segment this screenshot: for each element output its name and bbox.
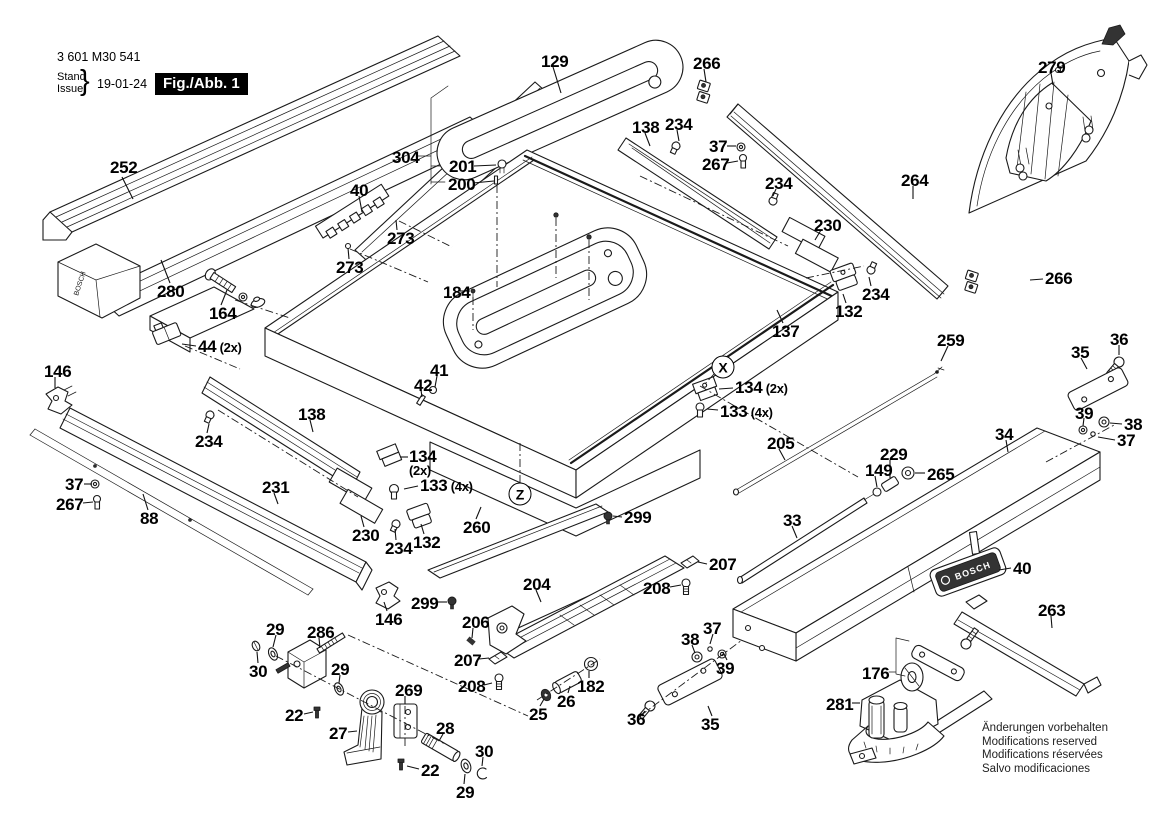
part-label: 273 <box>336 260 363 276</box>
leader-line <box>348 731 357 732</box>
part-label: 129 <box>541 54 568 70</box>
brace-glyph: } <box>80 65 90 98</box>
part-label: 132 <box>413 535 440 551</box>
part-label: 208 <box>458 679 485 695</box>
part-label: 207 <box>709 557 736 573</box>
part-label: 40 <box>1013 561 1031 577</box>
leader-line <box>707 409 718 410</box>
leader-line <box>999 568 1011 570</box>
leader-line <box>613 516 622 517</box>
leader-line <box>698 562 707 564</box>
part-label: 234 <box>385 541 412 557</box>
issue-date: 19-01-24 <box>97 77 147 91</box>
part-label: 133 (4x) <box>720 404 773 420</box>
leader-line <box>404 486 418 489</box>
leader-line <box>1098 437 1115 440</box>
part-label: 39 <box>1075 406 1093 422</box>
part-label: 33 <box>783 513 801 529</box>
part-label: 30 <box>249 664 267 680</box>
part-label: 230 <box>352 528 379 544</box>
part-label: 279 <box>1038 60 1065 76</box>
part-label: 88 <box>140 511 158 527</box>
part-label: 269 <box>395 683 422 699</box>
leader-line <box>474 165 496 166</box>
part-label: 134 (2x) <box>735 380 788 396</box>
part-label: 41 <box>430 363 448 379</box>
modification-note: Salvo modificaciones <box>982 763 1108 777</box>
part-label: 35 <box>701 717 719 733</box>
part-label: 234 <box>765 176 792 192</box>
part-label: 299 <box>624 510 651 526</box>
part-label: 263 <box>1038 603 1065 619</box>
part-label: 267 <box>702 157 729 173</box>
part-label: 36 <box>1110 332 1128 348</box>
part-label: 26 <box>557 694 575 710</box>
part-label: 230 <box>814 218 841 234</box>
leader-line <box>473 181 494 183</box>
part-label: 182 <box>577 679 604 695</box>
document-part-number: 3 601 M30 541 <box>57 50 140 64</box>
part-label: 149 <box>865 463 892 479</box>
part-label: 133 (4x) <box>420 478 473 494</box>
part-label: 234 <box>195 434 222 450</box>
part-label: 204 <box>523 577 550 593</box>
leader-line <box>1030 279 1043 280</box>
part-label: 208 <box>643 581 670 597</box>
leader-line <box>670 585 681 587</box>
part-label: 137 <box>772 324 799 340</box>
leader-line <box>122 177 133 199</box>
part-label: 28 <box>436 721 454 737</box>
modification-notes: Änderungen vorbehaltenModifications rese… <box>982 722 1108 776</box>
leader-line <box>143 494 148 510</box>
part-label: 260 <box>463 520 490 536</box>
part-label: 234 <box>862 287 889 303</box>
part-label: 36 <box>627 712 645 728</box>
part-label: 37 <box>709 139 727 155</box>
part-label: 35 <box>1071 345 1089 361</box>
part-label: 138 <box>298 407 325 423</box>
part-label: 39 <box>716 661 734 677</box>
part-label: 176 <box>862 666 889 682</box>
leader-line <box>182 344 196 346</box>
part-label: 252 <box>110 160 137 176</box>
part-label: 200 <box>448 177 475 193</box>
leader-line <box>719 388 733 389</box>
part-label: 265 <box>927 467 954 483</box>
part-label: 37 <box>65 477 83 493</box>
leader-line <box>1110 423 1122 424</box>
part-label: 206 <box>462 615 489 631</box>
modification-note: Änderungen vorbehalten <box>982 722 1108 736</box>
part-label: 134(2x) <box>409 449 436 477</box>
part-label: 259 <box>937 333 964 349</box>
part-label: 30 <box>475 744 493 760</box>
part-label: 146 <box>375 612 402 628</box>
part-label: 264 <box>901 173 928 189</box>
part-label: 37 <box>1117 433 1135 449</box>
part-label: 146 <box>44 364 71 380</box>
part-label: 22 <box>285 708 303 724</box>
part-label: 44 (2x) <box>198 339 242 355</box>
part-label: 231 <box>262 480 289 496</box>
part-label: 37 <box>703 621 721 637</box>
part-label: 205 <box>767 436 794 452</box>
modification-note: Modifications reserved <box>982 736 1108 750</box>
part-label: 281 <box>826 697 853 713</box>
part-label: 267 <box>56 497 83 513</box>
part-label: 266 <box>693 56 720 72</box>
leader-line <box>304 712 313 714</box>
exploded-parts-diagram-page: BOSCH <box>0 0 1166 824</box>
part-label: 27 <box>329 726 347 742</box>
detail-marker-x: X <box>712 356 735 379</box>
part-label: 38 <box>681 632 699 648</box>
part-label: 22 <box>421 763 439 779</box>
part-label: 34 <box>995 427 1013 443</box>
part-label: 138 <box>632 120 659 136</box>
part-label: 280 <box>157 284 184 300</box>
part-label: 201 <box>449 159 476 175</box>
part-label: 273 <box>387 231 414 247</box>
leader-line <box>221 290 227 305</box>
part-label: 299 <box>411 596 438 612</box>
part-label: 207 <box>454 653 481 669</box>
part-label: 164 <box>209 306 236 322</box>
part-label: 42 <box>414 378 432 394</box>
part-label: 29 <box>456 785 474 801</box>
leader-line <box>83 502 93 503</box>
part-label: 25 <box>529 707 547 723</box>
part-label: 184 <box>443 285 470 301</box>
part-label: 132 <box>835 304 862 320</box>
leader-line <box>161 260 170 283</box>
figure-label: Fig./Abb. 1 <box>155 73 248 95</box>
detail-marker-z: Z <box>509 483 532 506</box>
part-label: 234 <box>665 117 692 133</box>
leader-lines <box>0 0 1166 824</box>
part-label: 29 <box>266 622 284 638</box>
leader-line <box>407 766 419 769</box>
part-label: 40 <box>350 183 368 199</box>
part-label: 304 <box>392 150 419 166</box>
part-label: 286 <box>307 625 334 641</box>
part-label: 266 <box>1045 271 1072 287</box>
part-label: 29 <box>331 662 349 678</box>
modification-note: Modifications réservées <box>982 749 1108 763</box>
